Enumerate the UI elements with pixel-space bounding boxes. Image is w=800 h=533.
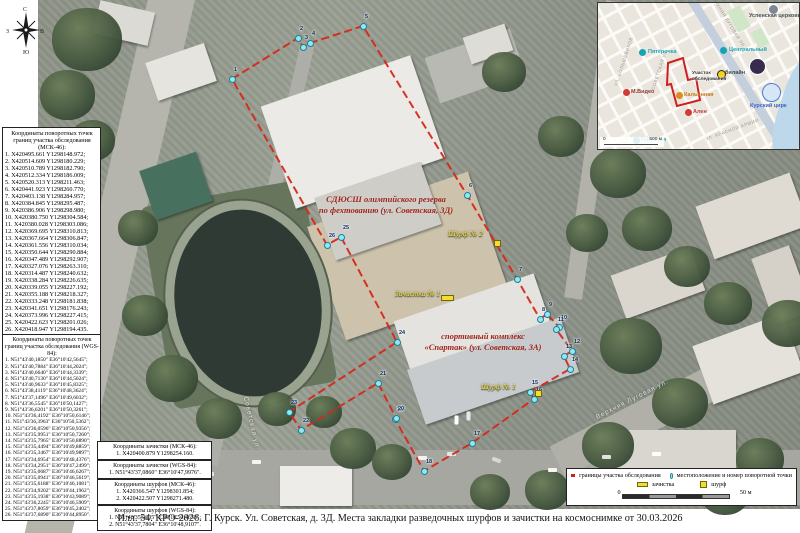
poi-label: Кальянная [684,92,713,98]
compass-west-label: З [6,29,9,35]
tree-cluster [372,444,412,480]
turn-point-dot [567,366,574,373]
coordinate-line: 6. X420441.923 Y1298260.770; [5,186,99,193]
coordinate-line: 12. X420369.695 Y1298310.813; [5,228,99,235]
car [467,412,471,421]
tree-cluster [664,246,710,287]
coordinate-line: 3. X420510.789 Y1298182.790; [5,165,99,172]
poi-orange-icon [676,92,683,99]
shurf-marker [535,390,542,397]
compass-rose-icon: С Ю З В [6,4,46,59]
tree-cluster [306,396,342,428]
poi-teal-icon [720,47,727,54]
tree-cluster [582,422,634,469]
zachistka-msk-box: Координаты зачистки (МСК-46): 1. X420400… [97,441,212,460]
turn-point-dot [286,409,293,416]
tree-cluster [704,282,752,325]
tree-cluster [196,398,242,439]
shurf-marker [494,240,501,247]
turn-point-dot [527,389,534,396]
coordinate-line: 7. N51°43'37,1496" E36°10'49,6032"; [5,395,99,401]
legend-scale-zero: 0 [618,489,621,496]
coordinate-line: 22. X420333.248 Y1298181.838; [5,298,99,305]
tree-cluster [590,148,646,198]
turn-point-dot [537,316,544,323]
inset-scale-end: 500 м [649,137,662,142]
tree-cluster [122,295,168,336]
school-label: СДЮСШ олимпийского резерва по фехтованию… [296,194,476,216]
zachistka-wgs-title: Координаты зачистки (WGS-84): [100,463,210,470]
coordinate-line: 16. N51°43'35,3467" E36°10'49,9897"; [5,450,99,456]
coordinate-line: 11. N51°43'36,3963" E36°10'50,5362"; [5,419,99,425]
tree-cluster [40,70,95,120]
inset-city-map: Участок обследования Успенская церковьПя… [597,2,800,150]
coordinate-line: 8. X420384.845 Y1298295.487; [5,200,99,207]
turn-point-dot [375,380,382,387]
shurf-label: Шурф № 1 [481,382,516,391]
shurf-label: Шурф № 2 [448,229,483,238]
poi-label: Пятёрочка [648,49,677,55]
tree-cluster [118,210,158,246]
zachistka-wgs-list: 1. N51°43'37,0860" E36°10'47,9976". [100,470,210,477]
coordinate-line: 14. X420361.556 Y1298310.034; [5,242,99,249]
car [252,460,261,464]
coordinate-line: 7. X420403.138 Y1298284.957; [5,193,99,200]
compass-north-label: С [23,7,27,13]
turn-point-dot [544,311,551,318]
turn-point-number: 25 [343,225,349,231]
turn-point-number: 2 [300,26,303,32]
compass-south-label: Ю [23,50,29,54]
turn-point-dot [360,23,367,30]
turn-point-dot [307,40,314,47]
turn-point-number: 17 [474,431,480,437]
tree-cluster [762,300,800,347]
school-label-line1: СДЮСШ олимпийского резерва [326,194,446,204]
coords-wgs-title: Координаты поворотных точек границ участ… [5,337,99,357]
coordinate-line: 9. X420386.906 Y1298298.980; [5,207,99,214]
inset-scale-zero: 0 [603,137,606,142]
legend-zachistka-label: зачистка [652,481,674,488]
tree-cluster [566,214,608,252]
turn-point-dot [561,353,568,360]
tree-cluster [622,206,672,251]
car [548,468,557,472]
coordinate-line: 11. X420380.028 Y1298303.086; [5,221,99,228]
turn-point-number: 7 [519,267,522,273]
turn-point-number: 1 [234,67,237,73]
coordinate-line: 16. X420347.489 Y1298292.907; [5,256,99,263]
coordinate-line: 2. X420514.609 Y1298180.229; [5,158,99,165]
tree-cluster [600,318,662,374]
tree-cluster [470,474,510,510]
coords-msk-title: Координаты поворотных точек границ участ… [5,130,99,151]
school-label-line2: по фехтованию (ул. Советская, 3Д) [319,205,453,215]
tree-cluster [146,355,198,402]
coords-msk-box: Координаты поворотных точек границ участ… [2,127,101,335]
poi-label: Ален [693,109,707,115]
compass-east-label: В [40,29,44,35]
inset-area-label: Участок обследования [692,71,726,82]
inset-area-label-line2: обследования [692,77,726,82]
tree-cluster [538,116,584,157]
coordinate-line: 1. X420495.661 Y1298148.972; [5,151,99,158]
poi-teal-icon [639,49,646,56]
zachistka-msk-list: 1. X420400.879 Y1298254.160. [100,451,210,458]
car [652,452,661,456]
spartak-label-line2: «Спартак» (ул. Советская, 3А) [424,342,541,352]
inset-scale-line [604,144,658,146]
legend-scale-bar: 0 50 м [612,490,752,500]
spartak-label: спортивный комплекс «Спартак» (ул. Совет… [393,331,573,353]
tree-cluster [525,470,569,510]
turn-point-dot [229,76,236,83]
car [447,452,456,456]
legend-scale-line [622,494,730,499]
coordinate-line: 2. N51°43'40,7884" E36°10'44,2024"; [5,364,99,370]
building [280,466,352,506]
car [455,416,459,425]
figure-page: 1234567891011121314151617181920212223242… [0,0,800,533]
legend-shurf-label: шурф [711,481,726,488]
turn-point-number: 20 [398,406,404,412]
coordinate-line: 18. X420314.487 Y1298240.632; [5,270,99,277]
coordinate-line: 21. X420355.188 Y1298218.327; [5,291,99,298]
turn-point-dot [531,396,538,403]
turn-point-dot [295,35,302,42]
coordinate-line: 20. X420339.055 Y1298227.192; [5,284,99,291]
legend-turn-point-icon [670,473,673,479]
poi-bigblue-icon [762,83,781,102]
turn-point-number: 22 [303,418,309,424]
coordinate-line: 1. N51°43'40,1850" E36°10'42,5645"; [5,357,99,363]
turn-point-number: 18 [426,459,432,465]
turn-point-number: 15 [532,380,538,386]
poi-label: Успенская церковь [744,13,800,19]
tree-cluster [482,52,526,92]
legend-turn-point-label: местоположение и номер поворотной точки [677,472,792,479]
tree-cluster [52,8,122,71]
poi-red-icon [623,89,630,96]
shurf-msk-list: 1. X420366.547 Y1298301.854;2. X420422.5… [100,489,210,503]
coordinate-line: 19. X420338.284 Y1298226.635; [5,277,99,284]
spartak-label-line1: спортивный комплекс [441,331,525,341]
zachistka-label: Зачистка № 1 [395,289,440,298]
turn-point-number: 9 [549,302,552,308]
turn-point-number: 14 [572,357,578,363]
turn-point-dot [338,234,345,241]
turn-point-dot [324,242,331,249]
inset-scale-bar: 0 500 м [600,137,664,147]
coordinate-line: 26. X420418.947 Y1298194.435. [5,326,99,333]
turn-point-number: 12 [574,339,580,345]
coords-msk-list: 1. X420495.661 Y1298148.972;2. X420514.6… [5,151,99,333]
coordinate-line: 12. N51°43'36,0596" E36°10'50,9356"; [5,426,99,432]
coordinate-line: 4. X420512.334 Y1298186.009; [5,172,99,179]
coordinate-line: 23. X420341.651 Y1298176.243; [5,305,99,312]
coordinate-line: 5. X420520.313 Y1298211.463; [5,179,99,186]
zachistka-wgs-box: Координаты зачистки (WGS-84): 1. N51°43'… [97,460,212,479]
coordinate-line: 25. X420422.623 Y1298201.026; [5,319,99,326]
poi-red-icon [685,109,692,116]
turn-point-number: 5 [365,14,368,20]
poi-label: Курский цирк [750,103,787,109]
coordinate-line: 15. X420350.644 Y1298290.884; [5,249,99,256]
legend-zachistka-icon [637,482,648,487]
legend-boundary-swatch [571,474,575,477]
turn-point-dot [393,415,400,422]
poi-label: Центральный [729,47,767,53]
inset-area-label-line1: Участок [692,71,711,76]
turn-point-dot [300,44,307,51]
zachistka-marker [441,295,454,301]
turn-point-number: 11 [558,317,564,323]
coordinate-line: 13. X420367.664 Y1298306.847; [5,235,99,242]
coordinate-line: 24. X420373.996 Y1298227.415; [5,312,99,319]
poi-label: М.Видео [631,89,654,95]
legend-box: границы участка обследования местоположе… [566,468,797,506]
legend-shurf-icon [700,481,707,488]
shurf-msk-box: Координаты шурфов (МСК-46): 1. X420366.5… [97,479,212,505]
turn-point-number: 21 [380,371,386,377]
turn-point-dot [514,276,521,283]
poi-disc-icon [749,58,766,75]
figure-caption: Илл. 54. КРО-2026. Г. Курск. Ул. Советск… [0,513,800,524]
shurf-msk-title: Координаты шурфов (МСК-46): [100,482,210,489]
inset-survey-area-outline [667,58,700,106]
turn-point-dot [298,427,305,434]
car [602,455,611,459]
coordinate-line: 1. N51°43'37,0860" E36°10'47,9976". [100,470,210,477]
coordinate-line: 17. X420327.076 Y1298263.310; [5,263,99,270]
coordinate-line: 1. X420400.879 Y1298254.160. [100,451,210,458]
turn-point-number: 26 [329,233,335,239]
zachistka-msk-title: Координаты зачистки (МСК-46): [100,444,210,451]
turn-point-number: 4 [312,31,315,37]
poi-label: билайн [725,70,745,76]
turn-point-number: 6 [469,183,472,189]
turn-point-dot [421,468,428,475]
legend-boundary-label: границы участка обследования [579,472,661,479]
legend-scale-end: 50 м [740,489,752,496]
coords-wgs-box: Координаты поворотных точек границ участ… [2,334,101,521]
coordinate-line: 6. N51°43'38,4119" E36°10'48,3624"; [5,388,99,394]
coordinate-line: 2. X420422.507 Y1298271.480. [100,496,210,503]
coords-wgs-list: 1. N51°43'40,1850" E36°10'42,5645";2. N5… [5,357,99,518]
coordinate-line: 22. N51°43'34,9202" E36°10'44,1962"; [5,488,99,494]
coordinate-line: 1. X420366.547 Y1298301.854; [100,489,210,496]
coordinate-line: 10. X420380.750 Y1298304.584; [5,214,99,221]
tree-cluster [330,428,376,469]
turn-point-dot [469,440,476,447]
turn-point-number: 23 [291,400,297,406]
coordinate-line: 21. N51°43'35,6188" E36°10'46,1081"; [5,481,99,487]
coordinate-line: 17. N51°43'34,6954" E36°10'48,4376"; [5,457,99,463]
